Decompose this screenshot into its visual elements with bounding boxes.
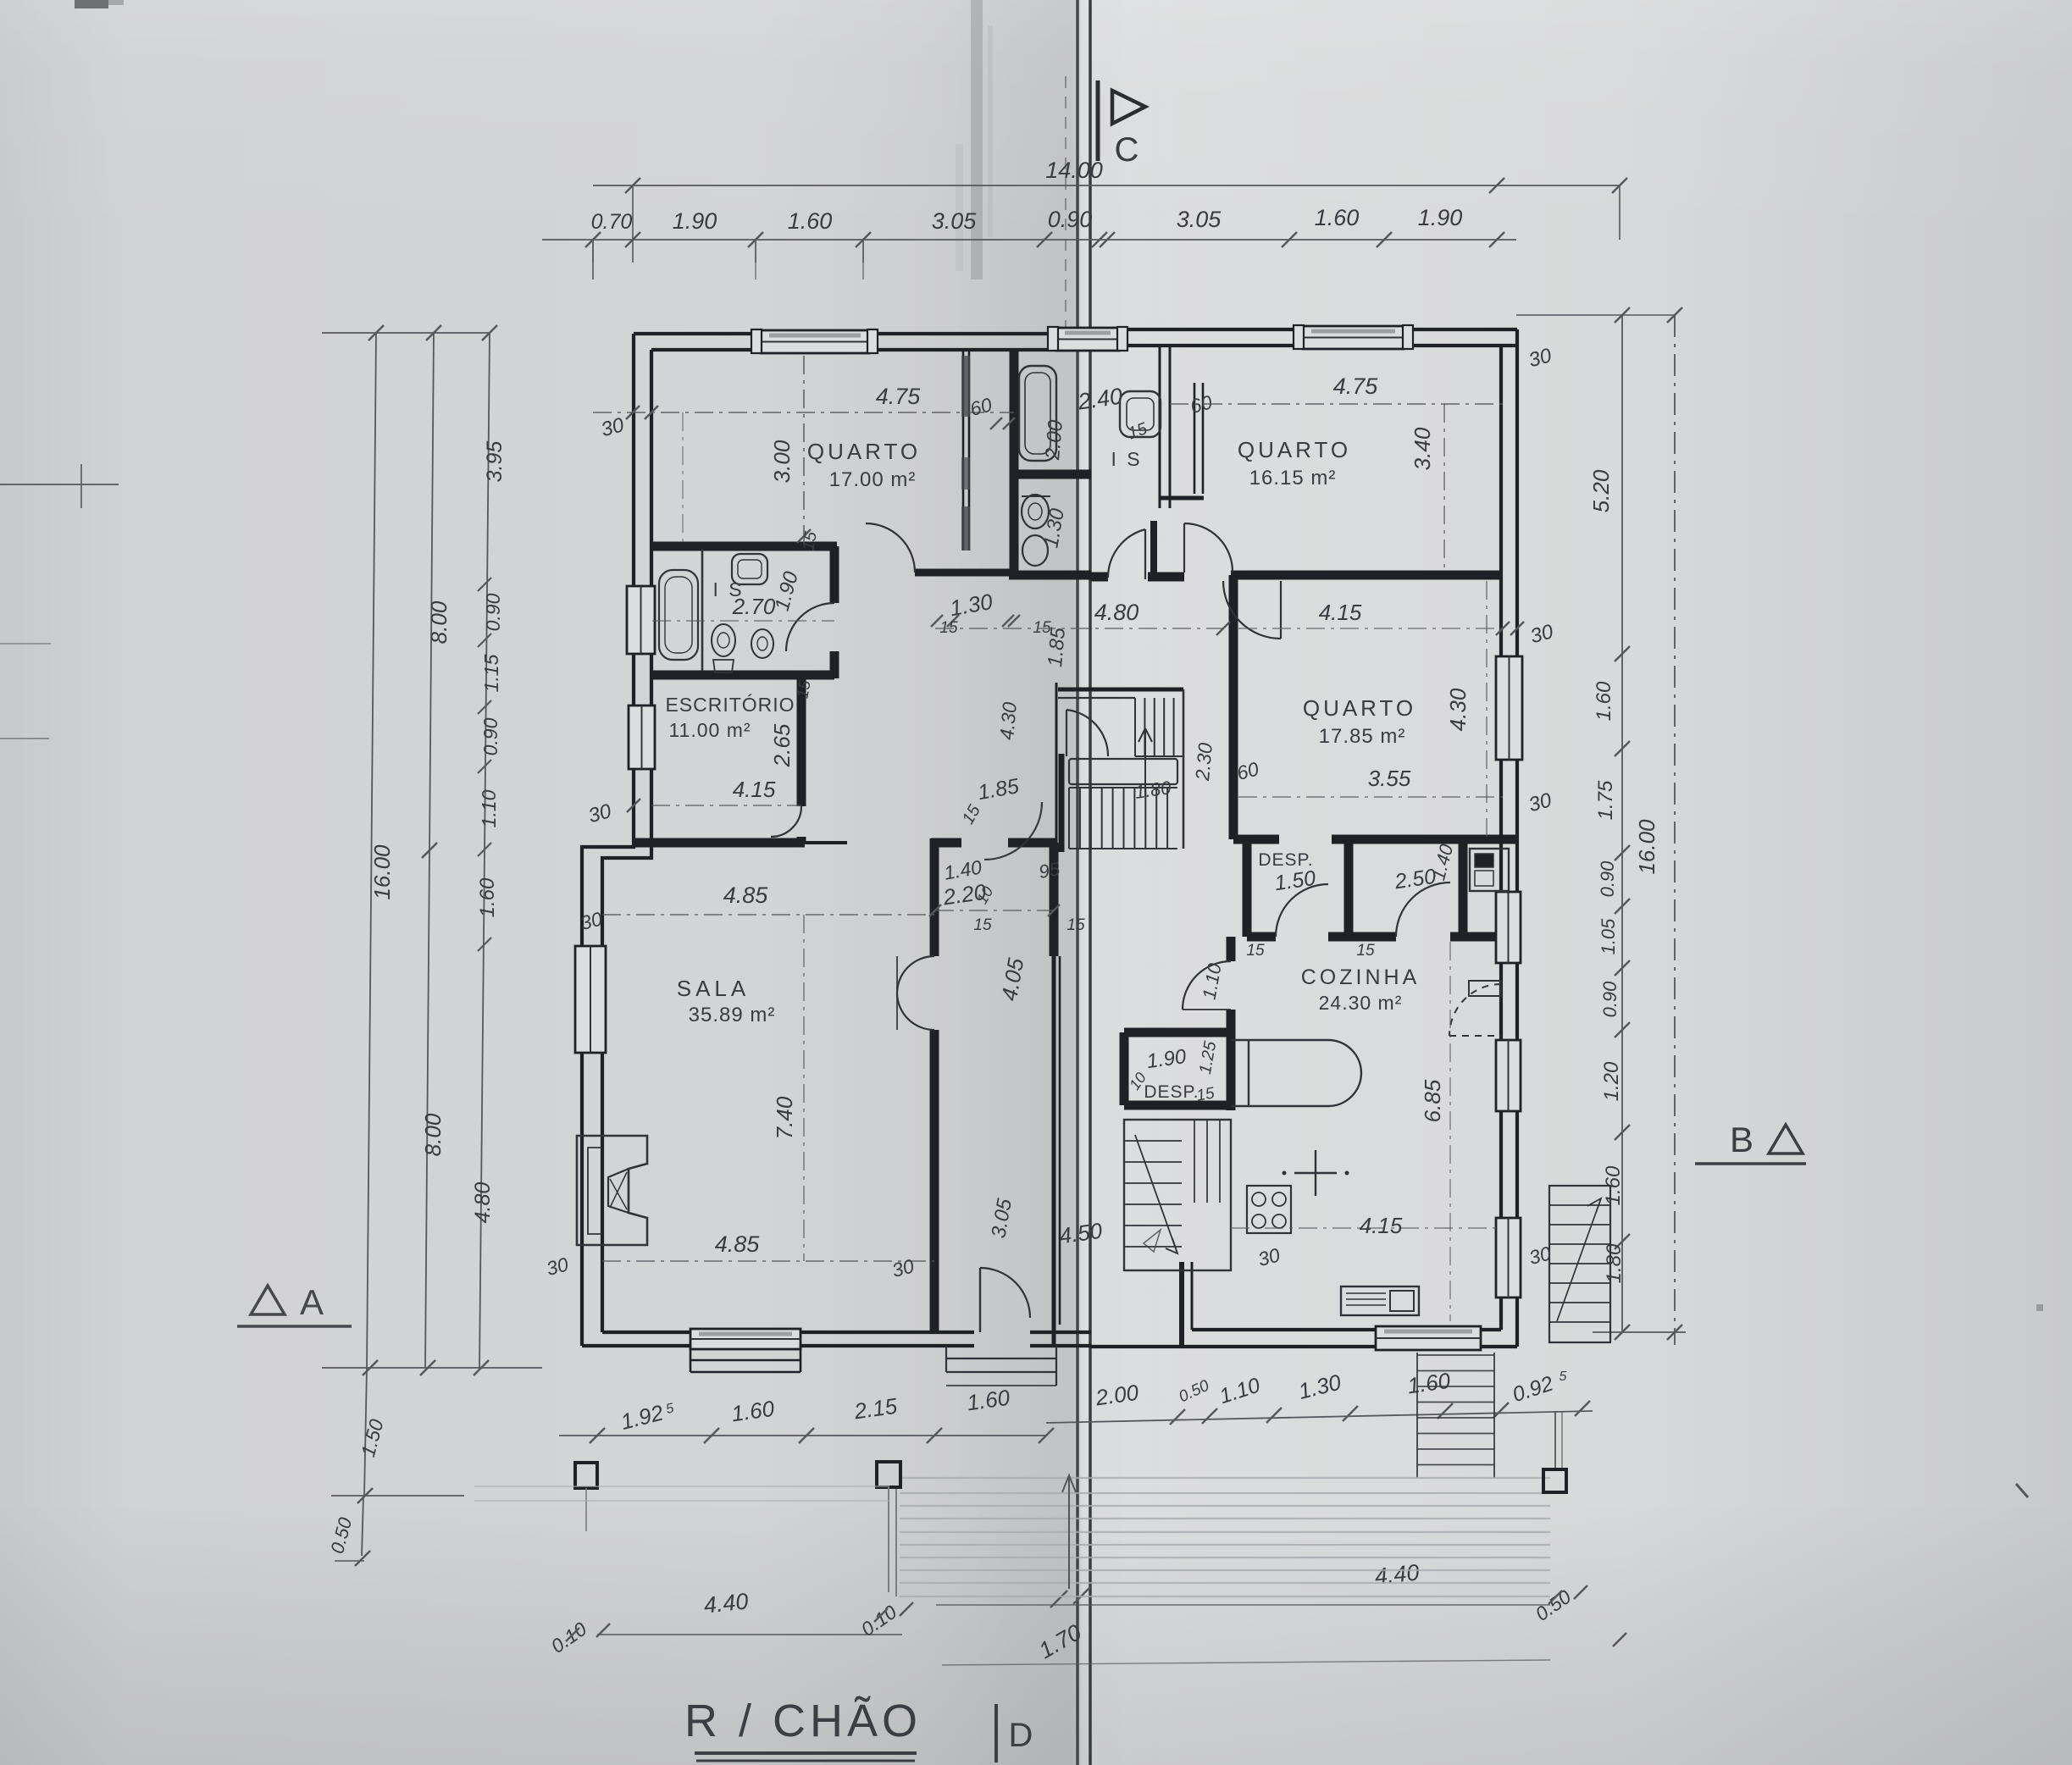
svg-text:3.55: 3.55 — [1368, 766, 1411, 791]
svg-text:QUARTO: QUARTO — [1238, 437, 1351, 462]
svg-text:QUARTO: QUARTO — [807, 439, 921, 464]
svg-text:DESP.: DESP. — [1144, 1082, 1199, 1102]
svg-text:4.80: 4.80 — [471, 1182, 495, 1224]
svg-text:3.40: 3.40 — [1410, 427, 1435, 470]
svg-text:95: 95 — [1037, 858, 1061, 882]
svg-text:3.05: 3.05 — [1177, 207, 1222, 232]
svg-text:4.75: 4.75 — [1333, 373, 1379, 399]
svg-text:15: 15 — [1246, 942, 1265, 960]
svg-text:4.85: 4.85 — [715, 1231, 761, 1257]
svg-text:14.00: 14.00 — [1045, 158, 1103, 183]
svg-text:2.30: 2.30 — [1191, 742, 1216, 783]
svg-text:1.20: 1.20 — [1600, 1061, 1623, 1101]
svg-text:8.00: 8.00 — [420, 1113, 446, 1156]
svg-text:3.95: 3.95 — [483, 441, 507, 483]
svg-text:1.10: 1.10 — [478, 789, 500, 827]
svg-text:4.85: 4.85 — [723, 882, 769, 908]
svg-text:35.89 m²: 35.89 m² — [689, 1004, 776, 1026]
svg-text:D: D — [1009, 1717, 1033, 1754]
svg-text:16.15 m²: 16.15 m² — [1249, 467, 1337, 490]
svg-text:1.90: 1.90 — [673, 208, 717, 234]
svg-text:C: C — [1115, 131, 1139, 169]
svg-text:1.60: 1.60 — [1593, 681, 1615, 721]
svg-text:0.90: 0.90 — [482, 593, 504, 631]
svg-text:8.00: 8.00 — [426, 600, 452, 644]
svg-text:4.15: 4.15 — [1319, 600, 1362, 625]
svg-text:17.85 m²: 17.85 m² — [1319, 725, 1406, 748]
svg-text:11.00 m²: 11.00 m² — [668, 719, 751, 741]
svg-text:4.15: 4.15 — [733, 777, 776, 802]
svg-text:0.70: 0.70 — [591, 210, 633, 234]
svg-text:4.40: 4.40 — [702, 1588, 749, 1618]
svg-text:4.75: 4.75 — [876, 384, 922, 409]
svg-text:1.15: 1.15 — [480, 654, 502, 692]
svg-text:I S: I S — [712, 578, 744, 600]
svg-text:SALA: SALA — [677, 976, 751, 1001]
svg-text:4.30: 4.30 — [1445, 688, 1471, 731]
svg-text:4.15: 4.15 — [1360, 1213, 1403, 1238]
svg-text:15: 15 — [794, 678, 814, 700]
svg-text:R / CHÃO: R / CHÃO — [684, 1696, 922, 1746]
svg-text:1.60: 1.60 — [788, 208, 833, 234]
svg-text:1.60: 1.60 — [1315, 205, 1360, 230]
svg-text:15: 15 — [1195, 1084, 1216, 1104]
svg-text:3.00: 3.00 — [769, 440, 795, 483]
svg-text:1.60: 1.60 — [476, 877, 499, 917]
svg-text:5.20: 5.20 — [1588, 469, 1614, 512]
svg-text:2.00: 2.00 — [1041, 418, 1067, 462]
svg-text:17.00 m²: 17.00 m² — [829, 468, 917, 491]
svg-text:5: 5 — [1560, 1369, 1567, 1384]
svg-text:4.30: 4.30 — [995, 701, 1021, 741]
svg-text:I S: I S — [1111, 448, 1142, 470]
svg-text:0.90: 0.90 — [1597, 860, 1618, 898]
svg-text:15: 15 — [1066, 916, 1085, 934]
svg-text:QUARTO: QUARTO — [1303, 695, 1416, 721]
svg-text:0.90: 0.90 — [1599, 981, 1620, 1018]
svg-text:COZINHA: COZINHA — [1301, 965, 1421, 989]
svg-text:2.65: 2.65 — [769, 723, 795, 767]
svg-text:B: B — [1730, 1120, 1753, 1159]
svg-text:ESCRITÓRIO: ESCRITÓRIO — [665, 694, 795, 716]
svg-text:A: A — [300, 1282, 324, 1322]
svg-text:4.80: 4.80 — [1094, 600, 1139, 625]
svg-text:1.90: 1.90 — [1418, 205, 1463, 230]
svg-text:0.90: 0.90 — [479, 717, 501, 755]
svg-text:0.90: 0.90 — [1048, 207, 1093, 232]
svg-text:24.30 m²: 24.30 m² — [1319, 992, 1403, 1014]
svg-text:4.40: 4.40 — [1373, 1559, 1420, 1589]
svg-text:DESP.: DESP. — [1258, 850, 1313, 870]
svg-text:16.00: 16.00 — [1634, 819, 1659, 875]
svg-text:1.75: 1.75 — [1594, 780, 1617, 820]
svg-text:15: 15 — [973, 916, 992, 934]
svg-text:1.05: 1.05 — [1598, 918, 1619, 955]
svg-text:15: 15 — [1356, 942, 1375, 960]
svg-text:6.85: 6.85 — [1420, 1079, 1445, 1122]
svg-text:3.05: 3.05 — [932, 208, 978, 234]
svg-text:1.85: 1.85 — [1044, 626, 1070, 668]
svg-text:16.00: 16.00 — [369, 844, 395, 900]
svg-text:7.40: 7.40 — [772, 1096, 797, 1139]
